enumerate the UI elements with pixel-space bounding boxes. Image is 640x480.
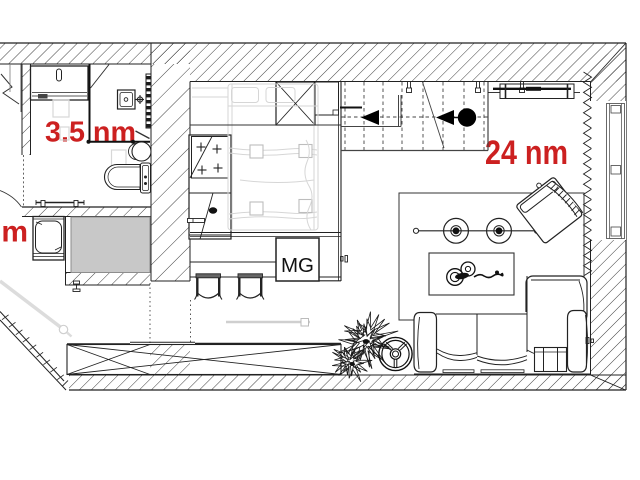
svg-text:24 nm: 24 nm bbox=[485, 134, 568, 172]
svg-text:nm: nm bbox=[0, 216, 28, 249]
svg-text:MG: MG bbox=[281, 254, 314, 277]
